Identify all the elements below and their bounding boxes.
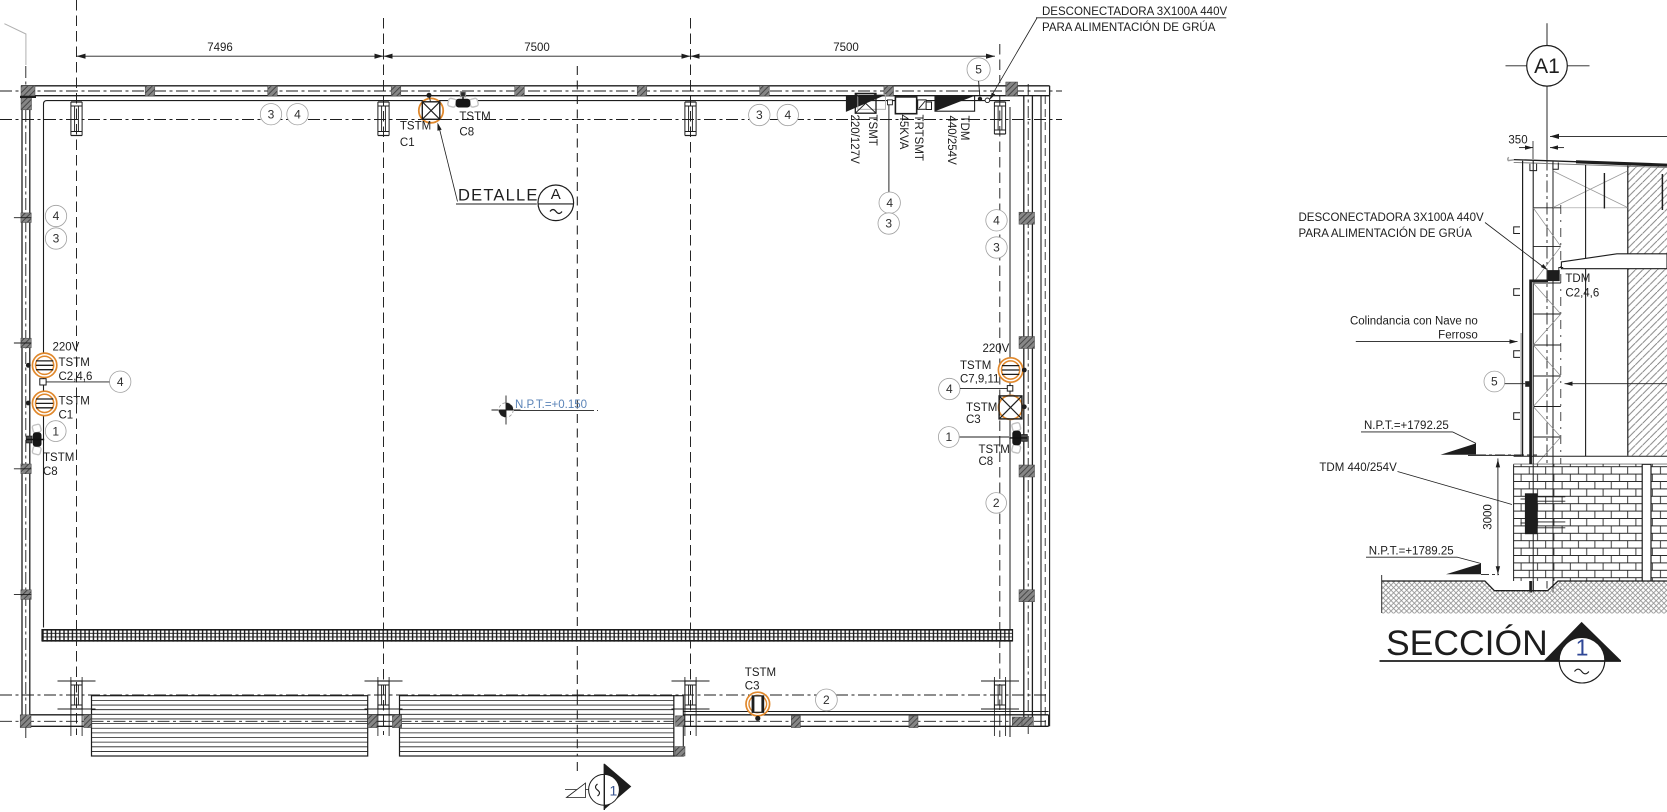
svg-text:3: 3 bbox=[53, 232, 60, 246]
svg-text:220V: 220V bbox=[983, 343, 1010, 355]
svg-text:4: 4 bbox=[886, 196, 893, 210]
svg-text:TDM: TDM bbox=[958, 116, 970, 141]
svg-text:4: 4 bbox=[117, 375, 124, 389]
svg-text:1: 1 bbox=[610, 783, 618, 799]
svg-text:TRTSMT: TRTSMT bbox=[912, 115, 924, 161]
svg-text:Colindancia con Nave no: Colindancia con Nave no bbox=[1350, 316, 1478, 328]
svg-text:4: 4 bbox=[294, 107, 301, 121]
svg-text:45KVA: 45KVA bbox=[897, 115, 909, 150]
svg-text:220/127V: 220/127V bbox=[848, 115, 860, 165]
svg-text:TSTM: TSTM bbox=[400, 120, 431, 132]
svg-text:TDM: TDM bbox=[1565, 273, 1590, 285]
svg-text:440/254V: 440/254V bbox=[945, 116, 957, 166]
svg-text:4: 4 bbox=[784, 108, 791, 122]
svg-text:SECCIÓN: SECCIÓN bbox=[1386, 623, 1548, 663]
svg-text:1: 1 bbox=[1576, 635, 1589, 661]
svg-text:C8: C8 bbox=[43, 466, 58, 478]
svg-text:DETALLE: DETALLE bbox=[458, 187, 539, 205]
svg-text:2: 2 bbox=[823, 693, 830, 707]
svg-text:PARA ALIMENTACIÓN DE GRÚA: PARA ALIMENTACIÓN DE GRÚA bbox=[1299, 227, 1473, 240]
svg-text:3: 3 bbox=[885, 217, 892, 231]
svg-text:4: 4 bbox=[53, 209, 60, 223]
svg-text:7500: 7500 bbox=[833, 42, 859, 54]
svg-text:3000: 3000 bbox=[1483, 504, 1495, 530]
svg-text:4: 4 bbox=[993, 214, 1000, 228]
svg-text:TSMT: TSMT bbox=[866, 115, 878, 146]
svg-text:PARA ALIMENTACIÓN DE GRÚA: PARA ALIMENTACIÓN DE GRÚA bbox=[1042, 21, 1216, 34]
svg-text:5: 5 bbox=[975, 63, 982, 77]
svg-text:C1: C1 bbox=[400, 137, 415, 149]
svg-text:3: 3 bbox=[993, 241, 1000, 255]
svg-text:C7,9,11: C7,9,11 bbox=[960, 374, 999, 386]
svg-text:7496: 7496 bbox=[207, 42, 233, 54]
svg-text:C8: C8 bbox=[459, 127, 474, 139]
svg-text:N.P.T.=+1789.25: N.P.T.=+1789.25 bbox=[1369, 545, 1454, 557]
svg-text:C2,4,6: C2,4,6 bbox=[59, 371, 93, 383]
svg-text:TSTM: TSTM bbox=[745, 667, 776, 679]
svg-text:TDM 440/254V: TDM 440/254V bbox=[1319, 462, 1397, 474]
svg-text:A: A bbox=[551, 186, 561, 203]
svg-text:Ferroso: Ferroso bbox=[1438, 330, 1478, 342]
svg-text:C3: C3 bbox=[745, 681, 760, 693]
svg-text:5: 5 bbox=[1491, 375, 1498, 389]
svg-text:DESCONECTADORA 3X100A 440V: DESCONECTADORA 3X100A 440V bbox=[1299, 212, 1484, 224]
svg-text:TSTM: TSTM bbox=[966, 402, 997, 414]
svg-text:1: 1 bbox=[945, 430, 952, 444]
svg-text:C8: C8 bbox=[979, 456, 994, 468]
svg-text:3: 3 bbox=[268, 107, 275, 121]
svg-text:C1: C1 bbox=[59, 410, 74, 422]
svg-text:C2,4,6: C2,4,6 bbox=[1565, 288, 1599, 300]
svg-text:4: 4 bbox=[946, 382, 953, 396]
svg-text:1: 1 bbox=[52, 424, 59, 438]
svg-text:C3: C3 bbox=[966, 414, 981, 426]
svg-text:7500: 7500 bbox=[524, 42, 550, 54]
svg-text:350: 350 bbox=[1508, 135, 1527, 147]
svg-text:TSTM: TSTM bbox=[960, 360, 991, 372]
svg-text:A1: A1 bbox=[1534, 55, 1560, 78]
svg-text:2: 2 bbox=[993, 496, 1000, 510]
svg-text:TSTM: TSTM bbox=[59, 396, 90, 408]
svg-text:N.P.T.=+0.150: N.P.T.=+0.150 bbox=[515, 399, 587, 411]
svg-text:TSTM: TSTM bbox=[43, 452, 74, 464]
svg-text:220V: 220V bbox=[53, 342, 80, 354]
svg-text:TSTM: TSTM bbox=[979, 444, 1010, 456]
svg-text:TSTM: TSTM bbox=[59, 357, 90, 369]
svg-text:N.P.T.=+1792.25: N.P.T.=+1792.25 bbox=[1364, 420, 1449, 432]
svg-text:TSTM: TSTM bbox=[459, 111, 490, 123]
svg-text:3: 3 bbox=[756, 108, 763, 122]
svg-text:DESCONECTADORA 3X100A 440V: DESCONECTADORA 3X100A 440V bbox=[1042, 6, 1227, 18]
